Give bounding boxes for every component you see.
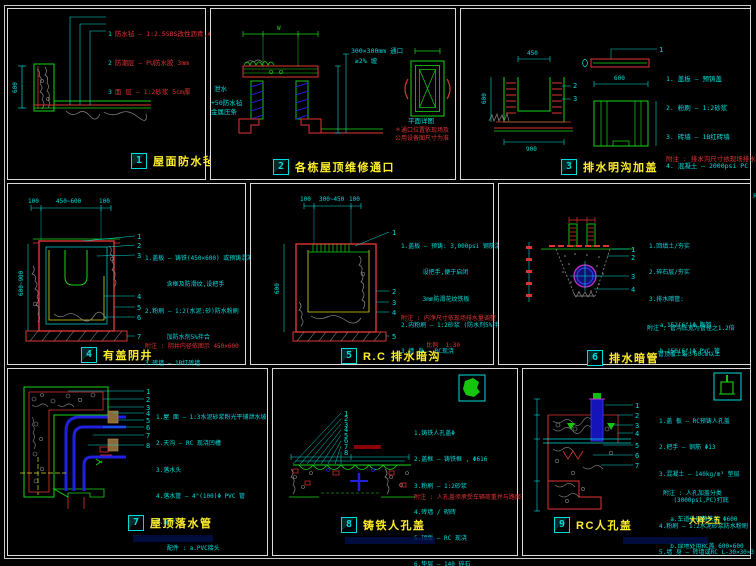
faint-print-artifact: [623, 537, 708, 544]
panel-2-roof-access-opening: W: [210, 8, 456, 180]
svg-text:7: 7: [635, 462, 639, 470]
svg-text:6: 6: [146, 424, 150, 432]
panel-5-title: 5 R.C 排水暗沟: [341, 348, 441, 364]
panel-number-badge: 8: [341, 517, 357, 533]
panel-number-badge: 4: [81, 347, 97, 363]
sheet-number-note: 大样之五: [689, 515, 721, 526]
note-line: 附注 : 人孔盖须承受车辆荷重并与路面齐平: [414, 493, 533, 502]
svg-text:3: 3: [392, 299, 396, 307]
svg-text:300~450: 300~450: [319, 196, 345, 203]
panel-number-badge: 7: [128, 515, 144, 531]
panel-2-title: 2 各栋屋顶维修通口: [273, 159, 395, 175]
svg-text:100: 100: [28, 198, 39, 205]
panel-number-badge: 2: [273, 159, 289, 175]
svg-text:100: 100: [300, 196, 311, 203]
cad-sheet: 600 1防水毡 — 1:2.5SBS改性沥青,40m 2防潮层 — PU防水胶…: [0, 0, 756, 566]
note-line: 1. 盖板 — 预铸盖: [666, 75, 756, 85]
panel-8-cast-iron-manhole-cover: 1 2 3 4 5 6 7 8: [272, 368, 518, 556]
downpipe: [66, 417, 126, 491]
opening-label: 300×300mm 通口: [351, 47, 403, 56]
panel-9-title: 9 RC人孔盖: [554, 517, 632, 533]
panel-4-covered-pit: 100 450~600 100 600~900 1 2 3 4 5: [7, 183, 246, 365]
panel-number-badge: 5: [341, 348, 357, 364]
svg-text:600: 600: [12, 82, 19, 93]
faint-print-artifact: [345, 537, 435, 544]
note-line: 3.落水头: [156, 467, 267, 476]
svg-text:1: 1: [146, 388, 150, 396]
note-line: 2.天沟 — RC 现浇凹槽: [156, 440, 267, 449]
svg-text:600: 600: [274, 283, 281, 294]
detail-marker-glyph-icon: [463, 378, 480, 397]
note-line: 1.回填土/夯实: [649, 243, 722, 252]
svg-text:1: 1: [137, 233, 141, 241]
svg-text:1: 1: [631, 246, 635, 254]
svg-text:900: 900: [526, 146, 537, 153]
svg-text:7: 7: [146, 432, 150, 440]
svg-text:2: 2: [137, 242, 141, 250]
panel-3-open-drain-cover: 450 600 900 1 2 3 600: [460, 8, 751, 180]
panel-4-title: 4 有盖阴井: [81, 347, 153, 363]
panel-8-title: 8 铸铁人孔盖: [341, 517, 426, 533]
svg-text:2: 2: [635, 412, 639, 420]
svg-text:8: 8: [146, 442, 150, 450]
note-line: 附注 : 内净尺寸依现场排水量调整: [401, 314, 496, 323]
panel-6-buried-drain-pipe: 1 2 3 4 1.回填土/夯实 2.碎石层/夯实 3.排水暗管: a.152(…: [498, 183, 751, 365]
svg-text:600: 600: [614, 75, 625, 82]
faint-print-artifact: [133, 535, 213, 542]
panel-title-text: 有盖阴井: [103, 347, 153, 363]
panel-9-rc-manhole-cover: 1 2 3 4 5 6 7 1.盖 板 — RC预铸人孔盖 2.把手 — 钢筋 …: [522, 368, 751, 556]
note-line: 1.铸铁人孔盖Φ: [414, 430, 487, 439]
svg-text:100: 100: [349, 196, 360, 203]
svg-text:2: 2: [631, 254, 635, 262]
plan-caption: 平面详图: [408, 117, 434, 126]
svg-text:4: 4: [631, 286, 635, 294]
svg-text:2: 2: [392, 288, 396, 296]
strip-label: +50防水毡金属压条: [211, 99, 242, 117]
panel-2-drawing: W: [211, 9, 457, 181]
note-line: 2.把手 — 钢筋 Φ13: [659, 444, 754, 453]
panel-number-badge: 9: [554, 517, 570, 533]
svg-text:3: 3: [573, 95, 577, 103]
svg-text:8: 8: [344, 449, 348, 457]
svg-text:3: 3: [631, 273, 635, 281]
detail-marker-glyph-icon: [721, 382, 733, 394]
svg-text:6: 6: [137, 314, 141, 322]
panel-title-text: 排水明沟加盖: [583, 159, 658, 175]
right-end-block: [381, 469, 415, 497]
svg-text:1: 1: [659, 46, 663, 54]
concrete-hatch: [553, 417, 613, 502]
svg-text:450~600: 450~600: [56, 198, 82, 205]
svg-text:3: 3: [635, 422, 639, 430]
note-line: 1.屋 面 — 1:3水泥砂浆粉光平铺泄水坡: [156, 414, 267, 423]
svg-text:4: 4: [392, 309, 396, 317]
note-line: 2防潮层 — PU防水胶 3mm: [108, 59, 219, 69]
panel-title-text: RC人孔盖: [576, 517, 632, 533]
note-line: 3.排水暗管:: [649, 296, 722, 305]
panel-number-badge: 1: [131, 153, 147, 169]
svg-text:3: 3: [137, 252, 141, 260]
slope-label: ≥2% 坡: [355, 57, 377, 66]
svg-text:5: 5: [392, 333, 396, 341]
svg-text:5: 5: [635, 442, 639, 450]
note-line: 1.盖 板 — RC预铸人孔盖: [659, 418, 754, 427]
note-line: 2. 粉刷 — 1:2砂浆: [666, 104, 756, 114]
panel-title-text: R.C 排水暗沟: [363, 348, 441, 364]
svg-text:600~900: 600~900: [18, 270, 25, 296]
note-line: 附注 : 阴井内径依图示 450×600: [145, 342, 242, 351]
svg-text:1: 1: [635, 402, 639, 410]
panel-number-badge: 6: [587, 350, 603, 366]
drain-label: 泄水: [214, 85, 227, 94]
svg-text:5: 5: [137, 304, 141, 312]
note-line: 2.碎石层/夯实: [649, 269, 722, 278]
note-line: 附注 : 人孔加盖分类: [663, 490, 744, 499]
panel-title-text: 铸铁人孔盖: [363, 517, 426, 533]
note-line: 1.盖板 — 铸铁(450×600) 或预铸混凝土盖: [145, 255, 265, 264]
note-line: 含框及防滑纹,设把手: [145, 281, 265, 290]
panel-1-roof-waterproofing: 600 1防水毡 — 1:2.5SBS改性沥青,40m 2防潮层 — PU防水胶…: [7, 8, 206, 180]
note-line: 配件 : a.PVC接头: [156, 545, 267, 554]
panel-1-notes: 1防水毡 — 1:2.5SBS改性沥青,40m 2防潮层 — PU防水胶 3mm…: [108, 10, 219, 117]
svg-text:2: 2: [146, 396, 150, 404]
svg-text:6: 6: [635, 452, 639, 460]
note-line: 6.垫层 — 140 碎石: [414, 561, 487, 566]
svg-text:7: 7: [137, 333, 141, 341]
panel-number-badge: 3: [561, 159, 577, 175]
note-line: 2.粉刷 — 1:2(水泥:砂)防水粉刷: [145, 308, 265, 317]
svg-text:100: 100: [99, 198, 110, 205]
svg-text:1: 1: [392, 229, 396, 237]
panel-7-title: 7 屋顶落水管: [128, 515, 213, 531]
panel-7-roof-downpipe: 1 2 3 4 5 6 7 8 1.屋 面 — 1:3水泥砂浆粉光平铺泄水坡 2…: [7, 368, 268, 556]
note-line: 3面 层 — 1:2砂浆 5cm厚: [108, 88, 219, 98]
concrete-hatch: [32, 393, 95, 483]
panel-title-text: 屋顶落水管: [150, 515, 213, 531]
panel-3-title: 3 排水明沟加盖: [561, 159, 658, 175]
left-end-block: [289, 469, 319, 497]
svg-text:4: 4: [137, 293, 141, 301]
note-line: 附注 : 管沟底宽为管径之1.2倍: [647, 325, 748, 334]
note-line: 管顶覆土最少60cm以上: [647, 351, 748, 360]
panel-6-title: 6 排水暗管: [587, 350, 659, 366]
svg-text:4: 4: [635, 430, 639, 438]
svg-text:2: 2: [573, 82, 577, 90]
plan-note: ＊通口位置依现场及公用设备图尺寸为准: [395, 127, 449, 143]
panel-title-text: 各栋屋顶维修通口: [295, 159, 395, 175]
svg-text:W: W: [277, 25, 281, 32]
panel-8-extra-notes: 附注 : 人孔盖须承受车辆荷重并与路面齐平: [414, 475, 533, 520]
panel-title-text: 排水暗管: [609, 350, 659, 366]
panel-5-rc-drain: 100 300~450 100 600 1 2 3 4 5 1.盖板 — 预铸:…: [250, 183, 494, 365]
note-line: 附注 : 排水沟尺寸依现场排水量调整: [666, 155, 756, 165]
callout-ladder: [293, 413, 341, 464]
note-line: 2.盖框 — 铸铁框 , Φ616: [414, 456, 487, 465]
note-line: 4.落水管 — 4"(100)Φ PVC 管: [156, 493, 267, 502]
svg-text:450: 450: [527, 50, 538, 57]
svg-text:600: 600: [481, 93, 488, 104]
note-line: 1防水毡 — 1:2.5SBS改性沥青,40m: [108, 30, 219, 40]
